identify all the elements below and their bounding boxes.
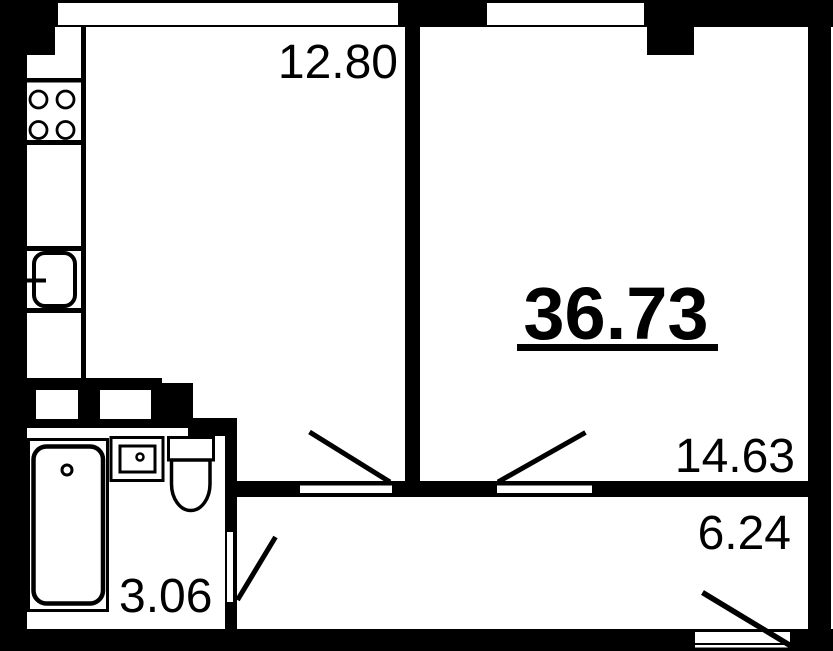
drain-icon: [62, 465, 72, 475]
door-opening-bathroom: [227, 532, 233, 602]
burner-icon: [30, 91, 47, 108]
counter-divider-2: [27, 140, 81, 145]
vent-shaft-1: [36, 390, 78, 419]
wall-right: [808, 0, 831, 651]
area-label-living-kitchen: 12.80: [278, 36, 398, 89]
counter-divider-3: [27, 246, 81, 251]
wall-step-a: [158, 383, 193, 428]
door-swing-bedroom: [498, 433, 586, 483]
wall-left: [0, 0, 27, 651]
entrance-door-threshold: [695, 645, 790, 648]
wall-partition-rooms: [405, 27, 420, 497]
counter-divider-1: [27, 78, 81, 83]
toilet-icon: [169, 438, 214, 511]
floorplan-canvas: 12.80 36.73 14.63 6.24 3.06: [0, 0, 833, 651]
window-bedroom: [487, 3, 644, 25]
counter-edge: [81, 27, 86, 378]
burner-icon: [30, 122, 47, 139]
counter-divider-4: [27, 308, 81, 313]
total-area-underline: [517, 344, 718, 351]
floorplan-drawing: 12.80 36.73 14.63 6.24 3.06: [0, 0, 833, 651]
area-label-bedroom: 14.63: [675, 430, 795, 483]
wall-pilaster: [647, 27, 694, 55]
door-opening-bedroom: [497, 486, 592, 494]
kitchen-sink-icon: [24, 253, 75, 306]
burner-icon: [57, 122, 74, 139]
door-swing-bathroom: [238, 537, 276, 600]
total-area-label: 36.73: [523, 272, 708, 355]
bathtub-icon: [27, 438, 109, 612]
vent-shaft-2: [100, 390, 151, 419]
washbasin-icon: [111, 438, 163, 481]
door-opening-living: [300, 486, 392, 494]
window-living-kitchen: [58, 3, 398, 25]
stove-icon: [30, 91, 74, 139]
area-label-hallway: 6.24: [698, 507, 791, 560]
burner-icon: [57, 91, 74, 108]
door-swing-living: [310, 432, 391, 482]
area-label-bathroom: 3.06: [119, 570, 212, 623]
